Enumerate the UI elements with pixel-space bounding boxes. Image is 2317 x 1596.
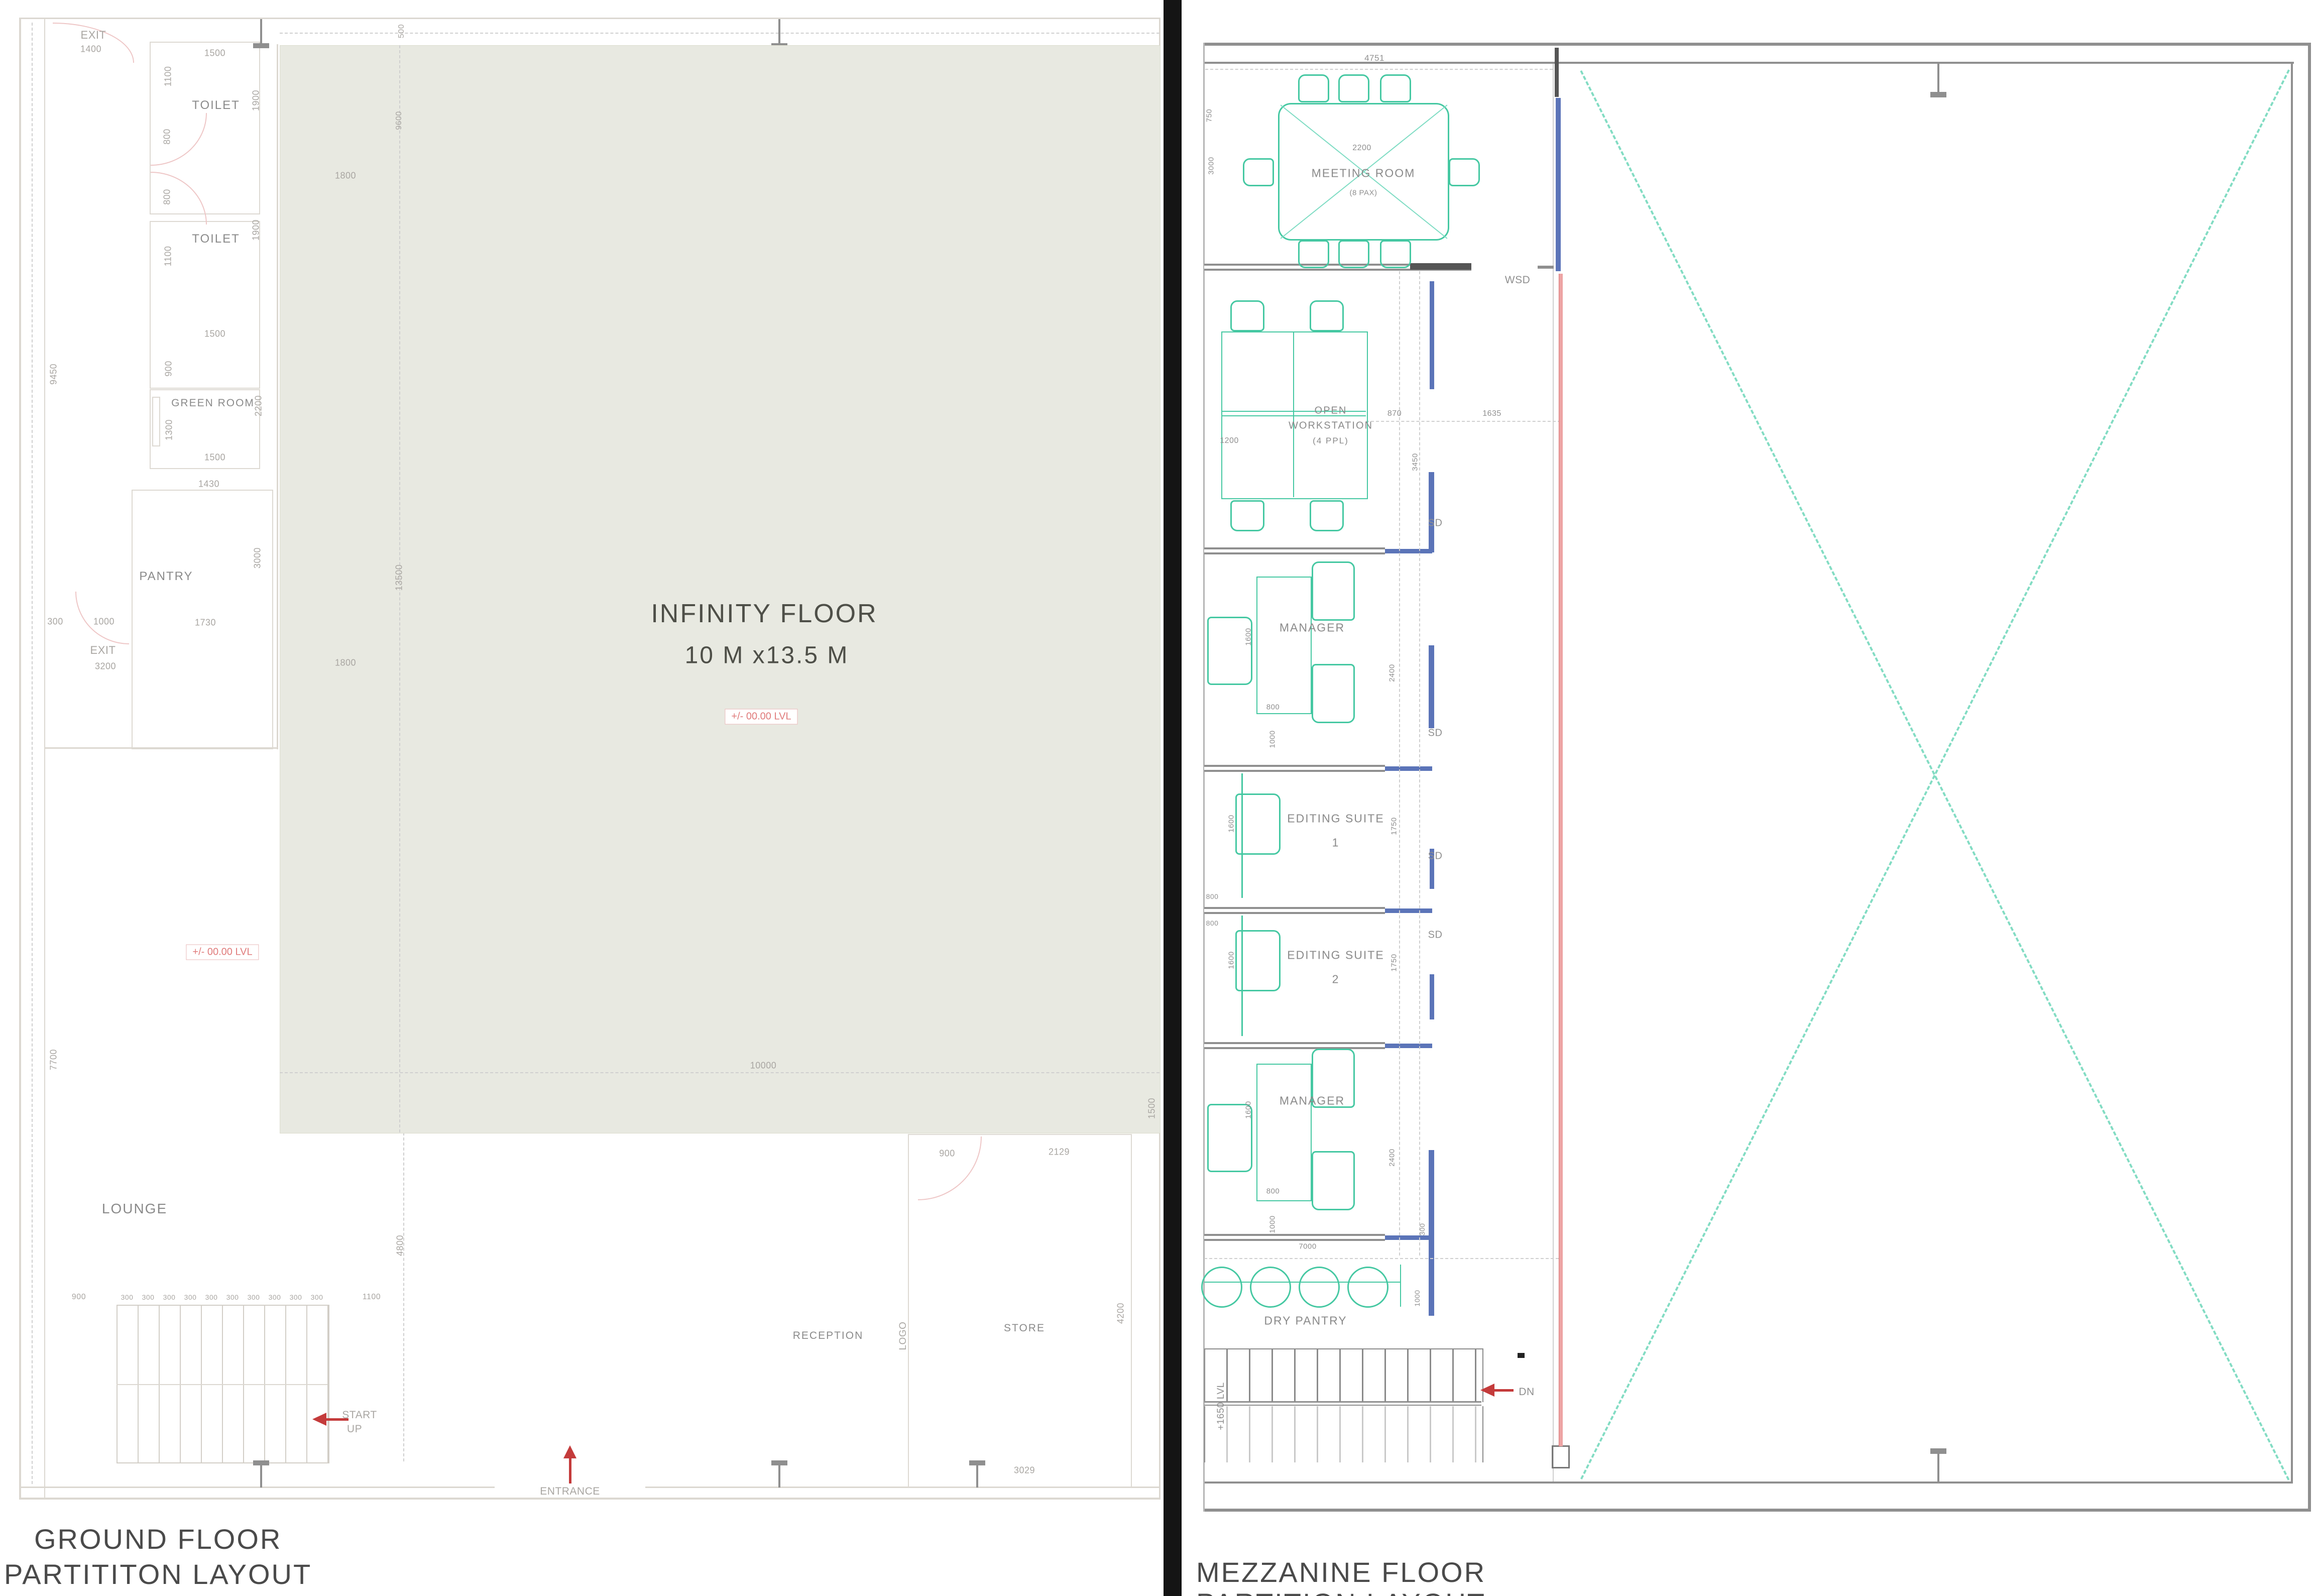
dim-750: 750	[1205, 109, 1214, 123]
dim-1730: 1730	[195, 618, 216, 628]
title-mezzanine-1: MEZZANINE FLOOR	[1196, 1556, 1486, 1588]
dim-3200: 3200	[95, 661, 116, 672]
dim-1100-t1: 1100	[163, 66, 174, 87]
dim-10000: 10000	[750, 1061, 777, 1071]
dim-2400-m1: 2400	[1388, 664, 1397, 681]
dim-1100-t2: 1100	[163, 246, 174, 267]
dim-300-s9: 300	[290, 1293, 302, 1301]
room-reception: RECEPTION	[793, 1330, 864, 1342]
dim-1300-green: 1300	[164, 419, 175, 440]
title-ground-2: PARTITITON LAYOUT	[4, 1558, 312, 1590]
room-es1-no: 1	[1332, 836, 1340, 850]
dim-1000-exit: 1000	[93, 617, 114, 627]
dim-300-s6: 300	[226, 1293, 239, 1301]
dim-1500-t1: 1500	[204, 48, 225, 59]
dim-1900-t1: 1900	[251, 90, 262, 111]
sd-label-4: SD	[1428, 930, 1443, 941]
room-ow-3: (4 PPL)	[1313, 436, 1349, 446]
dn-label: DN	[1519, 1386, 1534, 1398]
dim-13500: 13500	[394, 564, 405, 591]
dim-1600-es2: 1600	[1227, 951, 1236, 969]
dim-300-s4: 300	[184, 1293, 197, 1301]
dim-9600: 9600	[395, 111, 404, 130]
dim-300-s3: 300	[163, 1293, 176, 1301]
section-line	[1559, 274, 1563, 1446]
dim-800-m2: 800	[1266, 1187, 1280, 1196]
dim-1635: 1635	[1482, 409, 1501, 418]
dim-800-es-a: 800	[1206, 892, 1219, 900]
dim-300-s2: 300	[142, 1293, 155, 1301]
dashed-line	[280, 1072, 1160, 1073]
dim-300-s1: 300	[121, 1293, 134, 1301]
dim-1000-m1: 1000	[1268, 730, 1277, 748]
sd-label-2: SD	[1428, 728, 1443, 739]
dim-1600-es1: 1600	[1227, 815, 1236, 832]
dim-3450: 3450	[1411, 453, 1420, 471]
room-lounge: LOUNGE	[102, 1201, 167, 1217]
dim-300-dp: 300	[1418, 1223, 1426, 1236]
entrance-label: ENTRANCE	[540, 1486, 600, 1498]
dim-2129: 2129	[1049, 1147, 1070, 1158]
infinity-floor-title: INFINITY FLOOR	[651, 599, 877, 629]
dim-1600-m2: 1600	[1244, 1101, 1253, 1118]
room-toilet-2: TOILET	[192, 232, 240, 246]
start-up-label-1: START	[342, 1409, 377, 1421]
dim-1800-b: 1800	[335, 658, 356, 668]
dim-4751: 4751	[1364, 53, 1384, 63]
dim-1500-t2: 1500	[204, 329, 225, 339]
level-box-lounge: +/- 00.00 LVL	[186, 945, 259, 960]
dim-1750-es2: 1750	[1390, 954, 1399, 971]
dim-1100-stair: 1100	[363, 1293, 381, 1302]
dim-1500-green: 1500	[204, 452, 225, 463]
dim-1800-a: 1800	[335, 171, 356, 181]
sd-label-1: SD	[1428, 518, 1443, 529]
room-ow-2: WORKSTATION	[1289, 420, 1373, 432]
dim-1430: 1430	[198, 479, 219, 490]
dim-1500-right: 1500	[1147, 1098, 1157, 1119]
dim-4200: 4200	[1116, 1303, 1126, 1324]
room-meeting: MEETING ROOM	[1312, 167, 1416, 180]
room-es2-no: 2	[1332, 973, 1340, 986]
dim-500-top: 500	[397, 24, 406, 38]
floor-plan-sheet: PARTITION LAYOUT EXIT140015001100TOILET1…	[0, 0, 2317, 1596]
dim-900-stair: 900	[72, 1293, 86, 1302]
dim-900-store: 900	[939, 1149, 955, 1159]
room-green-room: GREEN ROOM	[171, 397, 255, 409]
room-manager-1: MANAGER	[1280, 621, 1345, 635]
room-pantry: PANTRY	[139, 569, 193, 584]
dim-1600-m1: 1600	[1244, 628, 1253, 645]
infinity-floor-area	[280, 45, 1161, 1133]
dim-2200-green: 2200	[254, 395, 264, 416]
dim-800-t2: 800	[162, 189, 173, 205]
wsd-label: WSD	[1505, 274, 1531, 286]
room-toilet-1: TOILET	[192, 98, 240, 112]
room-manager-2: MANAGER	[1280, 1094, 1345, 1108]
dim-2400-m2: 2400	[1388, 1149, 1397, 1166]
dim-7000: 7000	[1299, 1242, 1316, 1251]
dim-1750-es1: 1750	[1390, 817, 1399, 835]
dim-1000-m2: 1000	[1268, 1215, 1277, 1233]
dim-300-s5: 300	[205, 1293, 218, 1301]
level-1650: +1650 LVL	[1216, 1382, 1227, 1430]
dim-900-green: 900	[164, 361, 174, 377]
room-es2: EDITING SUITE	[1287, 949, 1384, 962]
sd-label-3: SD	[1428, 851, 1443, 862]
dim-300-s8: 300	[269, 1293, 281, 1301]
exit-side-label: EXIT	[90, 644, 116, 657]
dim-4800: 4800	[395, 1235, 406, 1256]
dim-3000-mr: 3000	[1207, 157, 1216, 174]
room-es1: EDITING SUITE	[1287, 812, 1384, 826]
dim-800-m1: 800	[1266, 703, 1280, 712]
level-box-infinity: +/- 00.00 LVL	[725, 709, 797, 725]
dim-1400: 1400	[80, 44, 101, 55]
dim-800-es-b: 800	[1206, 919, 1219, 927]
dim-300-s7: 300	[248, 1293, 260, 1301]
dim-1900-t2: 1900	[251, 219, 262, 241]
dim-1200-ow: 1200	[1220, 436, 1239, 445]
infinity-floor-size: 10 M x13.5 M	[685, 642, 849, 669]
panel-divider	[1164, 0, 1182, 1596]
dim-2200-mr: 2200	[1352, 144, 1371, 153]
logo-label: LOGO	[898, 1322, 909, 1350]
dim-300-exit: 300	[47, 617, 63, 627]
title-ground-1: GROUND FLOOR	[34, 1523, 282, 1555]
room-meeting-sub: (8 PAX)	[1350, 189, 1377, 197]
dim-7700: 7700	[49, 1049, 59, 1070]
exit-top-label: EXIT	[81, 29, 106, 42]
room-ow-1: OPEN	[1315, 405, 1347, 417]
dim-300-s10: 300	[311, 1293, 323, 1301]
start-up-label-2: UP	[347, 1423, 362, 1435]
dim-1000-dp: 1000	[1413, 1290, 1421, 1306]
dim-3000-pantry: 3000	[253, 547, 263, 568]
room-dry-pantry: DRY PANTRY	[1264, 1314, 1347, 1328]
room-store: STORE	[1004, 1322, 1045, 1334]
dim-870: 870	[1387, 409, 1402, 418]
dim-3029: 3029	[1014, 1465, 1035, 1476]
dim-9450: 9450	[49, 364, 59, 385]
dim-800-t1: 800	[162, 129, 173, 145]
